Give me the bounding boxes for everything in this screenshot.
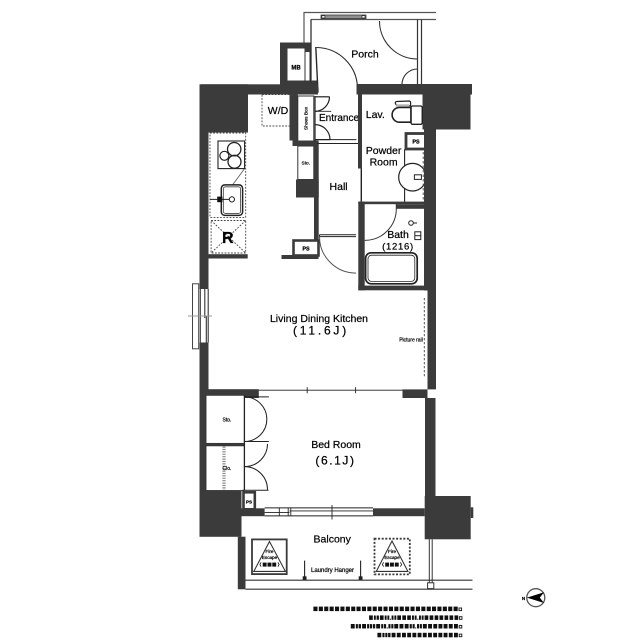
svg-text:Escape: Escape xyxy=(384,555,400,560)
svg-text:Escape: Escape xyxy=(262,555,278,560)
svg-text:Balcony: Balcony xyxy=(314,533,352,545)
svg-text:Bed Room: Bed Room xyxy=(311,439,361,451)
svg-text:Room: Room xyxy=(370,156,398,168)
svg-text:N: N xyxy=(522,596,525,601)
svg-text:Fire: Fire xyxy=(388,549,396,554)
svg-text:W/D: W/D xyxy=(268,105,289,117)
svg-text:Shoes Box: Shoes Box xyxy=(304,106,310,130)
svg-text:Porch: Porch xyxy=(351,49,379,61)
svg-text:MB: MB xyxy=(291,66,301,72)
svg-text:PS: PS xyxy=(302,247,310,253)
svg-text:PS: PS xyxy=(246,500,252,505)
svg-text:Picture rail: Picture rail xyxy=(399,338,423,344)
svg-text:Lav.: Lav. xyxy=(366,109,385,121)
svg-text:Entrance: Entrance xyxy=(319,113,359,124)
svg-text:Laundry Hanger: Laundry Hanger xyxy=(311,568,354,574)
svg-text:Sto.: Sto. xyxy=(302,161,311,167)
svg-text:(11.6J): (11.6J) xyxy=(293,324,349,338)
svg-text:Clo.: Clo. xyxy=(223,466,232,472)
svg-text:Hall: Hall xyxy=(330,181,348,193)
svg-text:Bath: Bath xyxy=(387,229,409,241)
svg-text:(6.1J): (6.1J) xyxy=(315,453,355,467)
svg-text:Powder: Powder xyxy=(366,145,402,157)
svg-text:Sto.: Sto. xyxy=(223,418,232,424)
svg-text:PS: PS xyxy=(412,140,420,146)
svg-text:Fire: Fire xyxy=(266,549,274,554)
svg-text:R: R xyxy=(222,230,234,247)
svg-text:(1216): (1216) xyxy=(382,241,414,252)
